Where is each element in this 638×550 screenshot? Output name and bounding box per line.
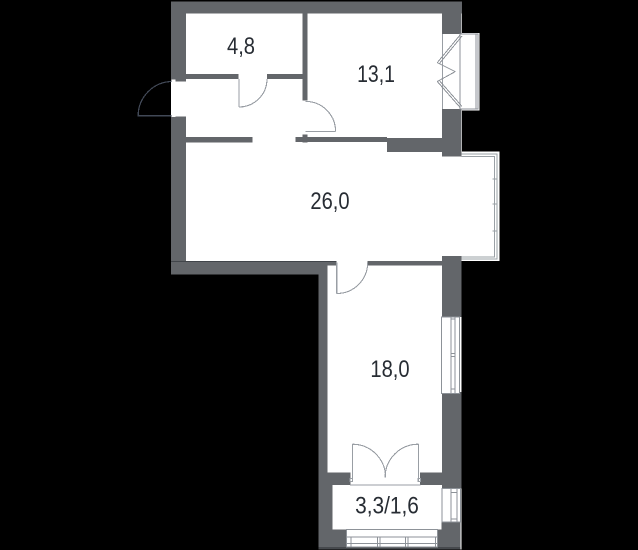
svg-text:18,0: 18,0 [370, 355, 409, 382]
svg-text:3,3/1,6: 3,3/1,6 [355, 492, 419, 519]
svg-text:13,1: 13,1 [357, 60, 395, 87]
svg-text:26,0: 26,0 [310, 187, 349, 214]
svg-text:4,8: 4,8 [227, 32, 255, 59]
